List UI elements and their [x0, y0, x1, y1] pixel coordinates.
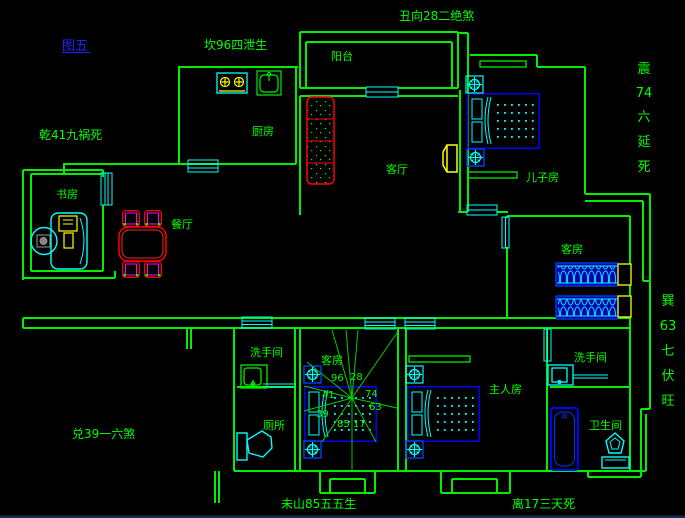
- bottom-block-walls: [234, 318, 630, 471]
- computer-tower: [64, 233, 73, 248]
- son-wardrobe: [480, 61, 526, 67]
- svg-text:死: 死: [637, 160, 650, 175]
- compass-number-74: 74: [365, 389, 378, 400]
- svg-text:震: 震: [637, 62, 650, 77]
- room-label-balcony: 阳台: [331, 49, 353, 63]
- room-label-toilet: 厕所: [263, 419, 285, 432]
- fengshui-south-left-label: 未山85五五生: [281, 497, 356, 511]
- room-label-study: 书房: [56, 188, 78, 201]
- guest-right-beds: [556, 263, 631, 319]
- son-dresser: [468, 172, 517, 178]
- fengshui-northwest-label: 乾41九祸死: [39, 127, 102, 142]
- washroom-right-threshold: [573, 375, 608, 378]
- son-bed: [468, 94, 540, 149]
- washroom-right-sink: [548, 365, 573, 385]
- svg-text:六: 六: [637, 110, 650, 125]
- kitchen-walls: [63, 67, 298, 174]
- compass-number-85: 85: [337, 419, 350, 430]
- master-wardrobe: [409, 356, 470, 362]
- figure-label-group: 图五: [62, 39, 90, 54]
- fengshui-west-label: 兑39一六煞: [72, 427, 135, 441]
- compass-number-63: 63: [369, 402, 382, 413]
- compass-number-96: 96: [331, 373, 344, 384]
- room-label-master: 主人房: [489, 383, 522, 396]
- compass-number-39: 39: [316, 409, 329, 420]
- floorplan-drawing: 96 28 41 74 39 63 85 17 图五 丑向28二绝煞 坎96四泄…: [0, 0, 685, 518]
- fengshui-east-vertical-label: 震 74 六 延 死: [636, 62, 653, 175]
- kitchen-sink: [257, 71, 281, 95]
- fengshui-south-right-label: 离17三天死: [512, 496, 575, 511]
- toilet-right: [602, 433, 629, 468]
- nightstand: [618, 264, 631, 285]
- svg-text:63: 63: [660, 319, 677, 334]
- room-label-dining: 餐厅: [171, 217, 193, 231]
- study-chair: [31, 228, 57, 255]
- washroom-left-threshold: [263, 384, 296, 387]
- corridor-wall: [23, 318, 630, 328]
- room-label-guest-right: 客房: [561, 242, 583, 256]
- study-window: [101, 173, 112, 205]
- entrance-stoops: [320, 471, 510, 493]
- nightstand: [618, 296, 631, 317]
- svg-text:延: 延: [637, 135, 650, 150]
- fengshui-southeast-vertical-label: 巽 63 七 伏 旺: [660, 294, 677, 409]
- fengshui-top-label: 丑向28二绝煞: [399, 8, 474, 23]
- compass-number-41: 41: [322, 390, 335, 401]
- sofa: [307, 97, 334, 184]
- bathtub: [551, 408, 578, 470]
- svg-text:旺: 旺: [661, 394, 674, 409]
- room-label-living: 客厅: [386, 162, 408, 176]
- figure-label: 图五: [62, 39, 88, 54]
- room-label-guest-bottom: 客房: [321, 353, 343, 367]
- master-bed: [408, 387, 480, 442]
- room-label-kitchen: 厨房: [252, 125, 274, 138]
- room-label-bathroom: 卫生间: [589, 418, 622, 432]
- room-label-son: 儿子房: [526, 171, 559, 184]
- dining-chairs: [123, 211, 162, 278]
- room-label-washroom-right: 洗手间: [574, 350, 607, 364]
- svg-text:巽: 巽: [661, 294, 674, 309]
- tv: [443, 145, 457, 172]
- kitchen-window: [188, 160, 218, 172]
- svg-text:74: 74: [636, 86, 653, 101]
- floorplan-canvas[interactable]: 96 28 41 74 39 63 85 17 图五 丑向28二绝煞 坎96四泄…: [0, 0, 685, 518]
- room-label-washroom-left: 洗手间: [250, 345, 283, 359]
- svg-text:七: 七: [661, 344, 674, 359]
- compass-number-28: 28: [350, 372, 363, 383]
- toilet-left: [237, 431, 272, 460]
- compass-number-17: 17: [353, 419, 366, 430]
- dining-table: [119, 227, 166, 261]
- svg-text:伏: 伏: [661, 369, 674, 384]
- stove: [217, 73, 247, 93]
- fengshui-north-label: 坎96四泄生: [204, 38, 267, 52]
